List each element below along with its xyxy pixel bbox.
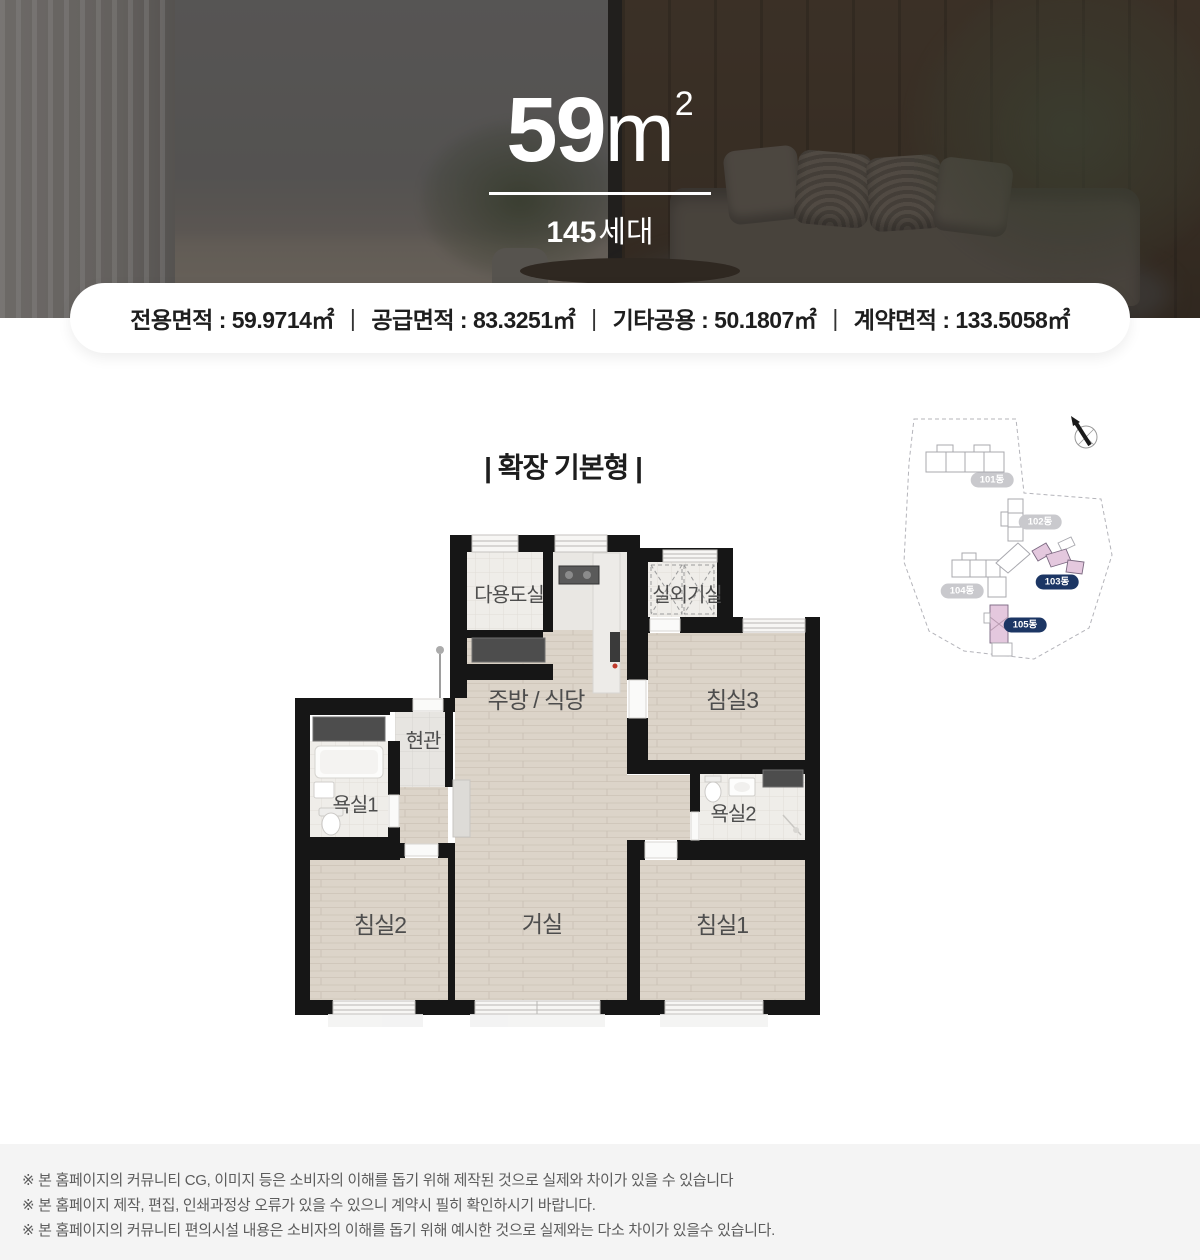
- footer-note: ※ 본 홈페이지의 커뮤니티 CG, 이미지 등은 소비자의 이해를 돕기 위해…: [22, 1168, 1178, 1193]
- hero-text-block: 59m2 145세대: [0, 84, 1200, 251]
- floor-plan-drawing: [293, 530, 833, 1042]
- room-label-bedroom2: 침실2: [354, 906, 406, 940]
- balcony-strips: [328, 1014, 768, 1027]
- room-label-entrance: 현관: [406, 725, 441, 754]
- room-label-bedroom3: 침실3: [706, 681, 758, 715]
- building-label-103: 103동: [1036, 575, 1079, 590]
- unit-size-unit: m: [605, 85, 673, 179]
- area-summary-divider: |: [591, 305, 596, 332]
- household-count-suffix: 세대: [598, 216, 653, 249]
- footer-note: ※ 본 홈페이지 제작, 편집, 인쇄과정상 오류가 있을 수 있으니 계약시 …: [22, 1193, 1178, 1218]
- room-label-ac-room: 실외기실: [652, 579, 722, 608]
- compass-icon: [1071, 416, 1097, 448]
- site-map-drawing: [880, 405, 1190, 695]
- building-label-102: 102동: [1019, 515, 1062, 530]
- building-label-101: 101동: [971, 473, 1014, 488]
- hero-divider-line: [489, 192, 711, 195]
- building-label-104: 104동: [941, 584, 984, 599]
- area-summary-pill: 전용면적 : 59.9714㎡ | 공급면적 : 83.3251㎡ | 기타공용…: [70, 283, 1130, 353]
- room-label-kitchen: 주방 / 식당: [488, 681, 585, 715]
- room-label-bedroom1: 침실1: [696, 906, 748, 940]
- unit-size-superscript: 2: [675, 85, 694, 123]
- room-label-utility: 다용도실: [474, 579, 544, 608]
- unit-size-heading: 59m2: [0, 84, 1200, 176]
- floor-plan-page: 59m2 145세대 전용면적 : 59.9714㎡ | 공급면적 : 83.3…: [0, 0, 1200, 1260]
- room-label-bath1: 욕실1: [333, 789, 378, 818]
- building-101: [926, 445, 1004, 472]
- room-label-living: 거실: [522, 905, 562, 939]
- site-map: 101동 102동 103동 104동 105동: [880, 405, 1190, 695]
- area-summary-divider: |: [350, 305, 355, 332]
- floor-plan: 다용도실 실외기실 주방 / 식당 침실3 현관 욕실1 욕실2 침실2 거실 …: [293, 530, 833, 1042]
- household-count-number: 145: [546, 216, 596, 249]
- hero-banner: 59m2 145세대: [0, 0, 1200, 318]
- area-summary-item: 전용면적 : 59.9714㎡: [130, 301, 334, 335]
- room-label-bath2: 욕실2: [711, 798, 756, 827]
- footer-note: ※ 본 홈페이지의 커뮤니티 편의시설 내용은 소비자의 이해를 돕기 위해 예…: [22, 1218, 1178, 1243]
- plan-type-title: | 확장 기본형 |: [293, 446, 833, 486]
- household-count: 145세대: [0, 207, 1200, 251]
- unit-size-number: 59: [506, 79, 604, 181]
- area-summary-item: 계약면적 : 133.5058㎡: [854, 301, 1070, 335]
- area-summary-divider: |: [832, 305, 837, 332]
- entry-door-marker: [436, 646, 444, 698]
- building-label-105: 105동: [1004, 618, 1047, 633]
- footer-disclaimer: ※ 본 홈페이지의 커뮤니티 CG, 이미지 등은 소비자의 이해를 돕기 위해…: [0, 1144, 1200, 1260]
- building-103: [1032, 537, 1084, 574]
- area-summary-item: 기타공용 : 50.1807㎡: [613, 301, 817, 335]
- area-summary-item: 공급면적 : 83.3251㎡: [371, 301, 575, 335]
